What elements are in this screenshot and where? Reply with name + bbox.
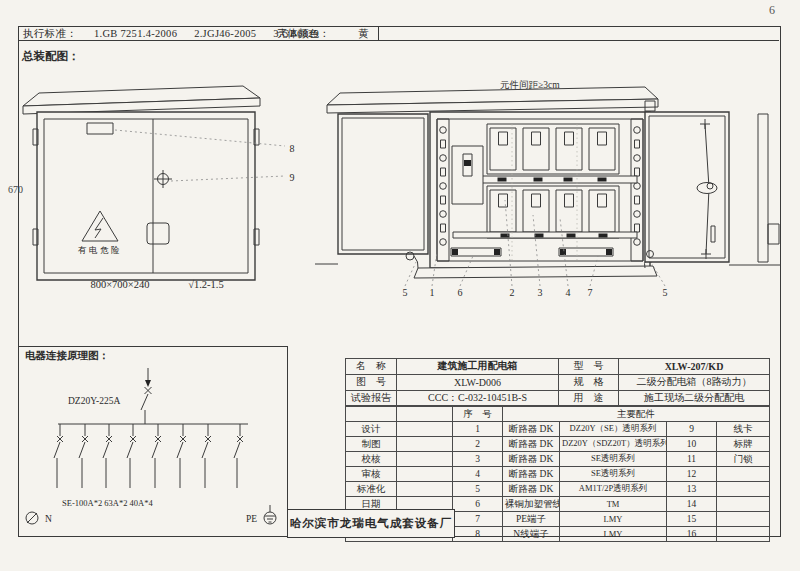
part-name-2: [717, 527, 770, 542]
header-strip-divider: [378, 26, 379, 40]
part-name-2: [717, 467, 770, 482]
box-dimensions: 800×700×240: [90, 279, 149, 290]
callout-number: 3: [538, 287, 543, 298]
item-no-2: 10: [667, 437, 717, 452]
table-row: 设计1断路器 DKDZ20Y（SE）透明系列9线卡: [346, 422, 770, 437]
pe-label: PE: [246, 514, 257, 524]
table-row: 制图2断路器 DKDZ20Y（SDZ20T）透明系列10标牌: [346, 437, 770, 452]
part-name-2: [717, 512, 770, 527]
item-no: 5: [453, 482, 503, 497]
cabinet-roof: [23, 86, 260, 114]
item-no-2: 16: [667, 527, 717, 542]
parts-header: 主要配件: [503, 407, 770, 422]
blank-cell: [346, 407, 397, 422]
breaker-unit: [523, 128, 549, 170]
rail-clip: [535, 234, 544, 238]
shell-color-label: 壳体颜色：: [277, 28, 330, 39]
callout-numbers: 51623475: [403, 287, 668, 298]
item-no-2: 13: [667, 482, 717, 497]
assembly-section-title: 总装配图：: [22, 49, 80, 64]
callout-number: 4: [566, 287, 571, 298]
table-row: 试验报告 CCC：C-032-10451B-S 用 途 施工现场二级分配配电: [346, 390, 770, 406]
role-label: 标准化: [346, 482, 397, 497]
role-label: 制图: [346, 437, 397, 452]
blank-cell: [397, 407, 453, 422]
part-spec: TM: [560, 497, 667, 512]
spec-label: 规 格: [559, 374, 619, 390]
right-open-door: [645, 101, 729, 262]
item-no-2: 9: [667, 422, 717, 437]
main-breaker-label: DZ20Y-225A: [68, 396, 120, 406]
item-no: 1: [453, 422, 503, 437]
cabinet-roof: [327, 87, 658, 113]
pe-ground-icon: [264, 505, 276, 524]
item-no-2: 14: [667, 497, 717, 512]
main-breaker-blade: [141, 394, 148, 410]
table-header-row: 序 号 主要配件: [346, 407, 770, 422]
standards-label: 执行标准：: [23, 28, 77, 39]
table-row: 名 称 建筑施工用配电箱 型 号 XLW-207/KD: [346, 359, 770, 375]
rail-clip: [564, 178, 573, 182]
breaker-unit: [523, 190, 549, 232]
main-breaker: [452, 146, 483, 204]
table-row: 标准化5断路器 DKAM1T/2P透明系列13: [346, 482, 770, 497]
callout-number: 5: [663, 287, 668, 298]
neutral-label: N: [45, 514, 52, 524]
breaker-unit: [556, 190, 582, 232]
role-label: 审核: [346, 467, 397, 482]
branch-breaker-spec: SE-100A*2 63A*2 40A*4: [62, 498, 153, 508]
rail-clip: [567, 234, 576, 238]
drawing-no-label: 图 号: [346, 374, 397, 390]
branch-blade: [177, 442, 183, 458]
info-table: 名 称 建筑施工用配电箱 型 号 XLW-207/KD 图 号 XLW-D006…: [345, 358, 770, 406]
part-name: 断路器 DK: [503, 482, 560, 497]
part-spec: SE透明系列: [560, 452, 667, 467]
closed-cabinet-drawing: 有电危险 800×700×240 √1.2-1.5 8 9: [15, 82, 297, 296]
item-no-2: 12: [667, 467, 717, 482]
callout-8: 8: [290, 143, 295, 154]
cabinet-body: [37, 112, 255, 280]
open-cabinet-drawing: 51623475: [315, 80, 782, 302]
incoming-feeder: [141, 368, 152, 424]
left-open-door: [338, 114, 428, 254]
item-no: 8: [453, 527, 503, 542]
part-name: 断路器 DK: [503, 422, 560, 437]
item-no-2: 15: [667, 512, 717, 527]
item-no: 3: [453, 452, 503, 467]
standard-1: 1.GB 7251.4-2006: [94, 28, 177, 39]
callout-number: 6: [458, 287, 463, 298]
model-label: 型 号: [559, 359, 619, 375]
branch-blade: [234, 442, 240, 458]
busbar-rail-low: [453, 232, 637, 238]
part-name: N线端子: [503, 527, 560, 542]
drawing-no-value: XLW-D006: [397, 374, 559, 390]
part-name: 裸铜加塑管线: [503, 497, 560, 512]
neutral-terminal-icon: [26, 512, 38, 524]
part-spec: LMY: [560, 527, 667, 542]
branch-blade: [54, 442, 60, 458]
rail-clip: [534, 178, 543, 182]
item-no: 7: [453, 512, 503, 527]
rail-clip: [598, 178, 607, 182]
part-name: PE端子: [503, 512, 560, 527]
warning-text: 有电危险: [78, 245, 122, 255]
role-label: 校核: [346, 452, 397, 467]
callout-number: 7: [588, 287, 593, 298]
branch-blade: [152, 442, 158, 458]
signature-cell: [397, 422, 453, 437]
item-no-2: 11: [667, 452, 717, 467]
callout-leader: [405, 262, 416, 286]
part-name: 断路器 DK: [503, 467, 560, 482]
surface-finish: √1.2-1.5: [188, 279, 224, 290]
part-name-2: [717, 497, 770, 512]
company-name: 哈尔滨市龙瑞电气成套设备厂: [290, 516, 453, 531]
branch-blade: [202, 442, 208, 458]
part-name-2: [717, 482, 770, 497]
item-no: 4: [453, 467, 503, 482]
test-report-label: 试验报告: [346, 390, 397, 406]
name-value: 建筑施工用配电箱: [397, 359, 559, 375]
item-no: 2: [453, 437, 503, 452]
part-name-2: 线卡: [717, 422, 770, 437]
usage-value: 施工现场二级分配配电: [619, 390, 770, 406]
part-name: 断路器 DK: [503, 437, 560, 452]
test-report-value: CCC：C-032-10451B-S: [397, 390, 559, 406]
callout-number: 2: [510, 287, 515, 298]
index-header: 序 号: [453, 407, 503, 422]
signature-cell: [397, 482, 453, 497]
shell-color: 壳体颜色： 黄: [277, 27, 369, 41]
part-spec: AM1T/2P透明系列: [560, 482, 667, 497]
part-name-2: 标牌: [717, 437, 770, 452]
part-spec: LMY: [560, 512, 667, 527]
table-row: 图 号 XLW-D006 规 格 二级分配电箱（8路动力）: [346, 374, 770, 390]
page-number: 6: [769, 3, 775, 18]
callout-9: 9: [290, 172, 295, 183]
table-row: 审核4断路器 DKSE透明系列12: [346, 467, 770, 482]
item-no: 6: [453, 497, 503, 512]
wiring-schematic-drawing: DZ20Y-225A SE-100A*2 63A*2 40A*4 N PE: [18, 346, 288, 538]
table-row: 校核3断路器 DKSE透明系列11门锁: [346, 452, 770, 467]
model-value: XLW-207/KD: [619, 359, 770, 375]
rail-clip: [498, 178, 507, 182]
spec-value: 二级分配电箱（8路动力）: [619, 374, 770, 390]
branch-blade: [127, 442, 133, 458]
branch-blade: [79, 442, 85, 458]
side-panel-bracket: [768, 224, 779, 244]
base-plinth: [414, 266, 657, 278]
name-label: 名 称: [346, 359, 397, 375]
door-side-panel: [758, 114, 779, 262]
usage-label: 用 途: [559, 390, 619, 406]
breaker-unit: [556, 128, 582, 170]
company-name-box: 哈尔滨市龙瑞电气成套设备厂: [287, 509, 455, 538]
breaker-unit: [589, 190, 615, 232]
part-name: 断路器 DK: [503, 452, 560, 467]
callout-number: 1: [430, 287, 435, 298]
rail-clip: [599, 234, 608, 238]
signature-cell: [397, 437, 453, 452]
callout-number: 5: [403, 287, 408, 298]
branch-circuits: [54, 424, 243, 488]
breaker-unit: [589, 128, 615, 170]
shell-color-value: 黄: [358, 28, 369, 39]
branch-blade: [103, 442, 109, 458]
part-spec: DZ20Y（SE）透明系列: [560, 422, 667, 437]
part-name-2: 门锁: [717, 452, 770, 467]
role-label: 设计: [346, 422, 397, 437]
signature-cell: [397, 467, 453, 482]
part-spec: SE透明系列: [560, 467, 667, 482]
signature-cell: [397, 452, 453, 467]
standard-2: 2.JGJ46-2005: [194, 28, 256, 39]
part-spec: DZ20Y（SDZ20T）透明系列: [560, 437, 667, 452]
